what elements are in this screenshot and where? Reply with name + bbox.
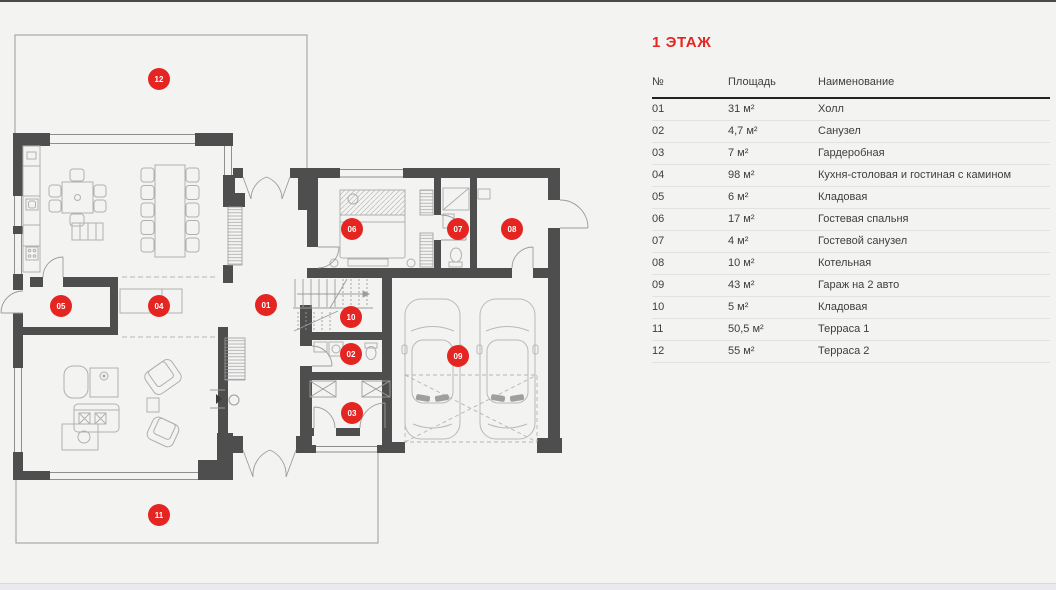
legend-rows: 0131 м²Холл024,7 м²Санузел037 м²Гардероб… xyxy=(652,99,1050,363)
terrace-1-outline xyxy=(16,453,378,543)
windows xyxy=(15,135,404,480)
row-num: 04 xyxy=(652,165,728,186)
car-2 xyxy=(477,299,538,439)
room-marker-04[interactable]: 04 xyxy=(148,295,170,317)
row-name: Гараж на 2 авто xyxy=(818,275,1050,296)
lounge-chair xyxy=(64,366,88,398)
row-area: 7 м² xyxy=(728,143,818,164)
hall-wardrobe-upper xyxy=(228,207,242,265)
dining-table xyxy=(141,165,199,257)
row-area: 4 м² xyxy=(728,231,818,252)
desk-chair xyxy=(78,431,90,443)
row-area: 98 м² xyxy=(728,165,818,186)
room-marker-03[interactable]: 03 xyxy=(341,402,363,424)
svg-text:10: 10 xyxy=(347,313,356,322)
row-num: 11 xyxy=(652,319,728,340)
row-num: 12 xyxy=(652,341,728,362)
armchair-2 xyxy=(145,415,181,449)
svg-text:12: 12 xyxy=(155,75,164,84)
boiler-unit xyxy=(478,189,490,199)
storage-exterior-door xyxy=(1,291,23,313)
legend-row-01: 0131 м²Холл xyxy=(652,99,1050,121)
row-area: 5 м² xyxy=(728,297,818,318)
row-name: Гостевой санузел xyxy=(818,231,1050,252)
bottom-strip xyxy=(0,583,1056,590)
row-name: Кухня-столовая и гостиная с камином xyxy=(818,165,1050,186)
svg-text:04: 04 xyxy=(155,302,164,311)
row-area: 50,5 м² xyxy=(728,319,818,340)
boiler-inner-door xyxy=(512,247,533,268)
row-name: Гардеробная xyxy=(818,143,1050,164)
sofa xyxy=(74,404,119,432)
row-area: 31 м² xyxy=(728,99,818,120)
room-marker-09[interactable]: 09 xyxy=(447,345,469,367)
legend-row-05: 056 м²Кладовая xyxy=(652,187,1050,209)
row-num: 05 xyxy=(652,187,728,208)
svg-text:08: 08 xyxy=(508,225,517,234)
row-num: 01 xyxy=(652,99,728,120)
row-name: Санузел xyxy=(818,121,1050,142)
svg-text:07: 07 xyxy=(454,225,463,234)
kitchen-table xyxy=(49,169,106,226)
svg-text:11: 11 xyxy=(155,511,164,520)
room-marker-02[interactable]: 02 xyxy=(340,343,362,365)
legend-row-09: 0943 м²Гараж на 2 авто xyxy=(652,275,1050,297)
desk xyxy=(62,424,98,450)
nightstand-2 xyxy=(407,259,415,267)
legend-row-08: 0810 м²Котельная xyxy=(652,253,1050,275)
row-num: 03 xyxy=(652,143,728,164)
col-area: Площадь xyxy=(728,76,818,88)
kitchen-appliance-icon xyxy=(27,152,36,159)
row-name: Кладовая xyxy=(818,187,1050,208)
legend-row-11: 1150,5 м²Терраса 1 xyxy=(652,319,1050,341)
row-num: 08 xyxy=(652,253,728,274)
row-num: 07 xyxy=(652,231,728,252)
terrace-2-outline xyxy=(15,35,307,168)
boiler-exterior-door xyxy=(560,200,588,228)
garage xyxy=(402,299,538,442)
svg-text:03: 03 xyxy=(348,409,357,418)
bed-bench xyxy=(348,259,388,266)
row-name: Терраса 2 xyxy=(818,341,1050,362)
row-num: 02 xyxy=(652,121,728,142)
legend-row-02: 024,7 м²Санузел xyxy=(652,121,1050,143)
legend-row-10: 105 м²Кладовая xyxy=(652,297,1050,319)
bedroom-wardrobe-2 xyxy=(420,233,433,267)
legend-row-06: 0617 м²Гостевая спальня xyxy=(652,209,1050,231)
bedroom-wardrobe-1 xyxy=(420,190,433,215)
legend-row-03: 037 м²Гардеробная xyxy=(652,143,1050,165)
row-area: 17 м² xyxy=(728,209,818,230)
room-marker-06[interactable]: 06 xyxy=(341,218,363,240)
svg-text:06: 06 xyxy=(348,225,357,234)
svg-text:02: 02 xyxy=(347,350,356,359)
room-markers: 010203040506070809101112 xyxy=(50,68,523,526)
living-room-furniture xyxy=(62,357,184,450)
row-name: Терраса 1 xyxy=(818,319,1050,340)
legend-row-07: 074 м²Гостевой санузел xyxy=(652,231,1050,253)
row-name: Котельная xyxy=(818,253,1050,274)
wardrobe-door-right xyxy=(360,403,385,428)
legend-panel: 1 ЭТАЖ № Площадь Наименование 0131 м²Хол… xyxy=(652,28,1050,363)
table-plant-icon xyxy=(75,195,81,201)
row-area: 6 м² xyxy=(728,187,818,208)
room-marker-07[interactable]: 07 xyxy=(447,218,469,240)
row-area: 4,7 м² xyxy=(728,121,818,142)
side-table xyxy=(147,398,159,412)
kitchen-counter xyxy=(23,146,103,272)
floor-plan: 010203040506070809101112 xyxy=(0,0,640,590)
garage-door-zone xyxy=(405,375,537,442)
page-title: 1 ЭТАЖ xyxy=(652,34,1050,51)
col-number: № xyxy=(652,76,728,88)
hall-wardrobe-lower xyxy=(225,338,245,380)
room-marker-10[interactable]: 10 xyxy=(340,306,362,328)
toilet-icon xyxy=(451,248,462,262)
legend-row-12: 1255 м²Терраса 2 xyxy=(652,341,1050,363)
row-area: 10 м² xyxy=(728,253,818,274)
row-name: Кладовая xyxy=(818,297,1050,318)
row-num: 09 xyxy=(652,275,728,296)
row-area: 43 м² xyxy=(728,275,818,296)
row-num: 06 xyxy=(652,209,728,230)
row-name: Холл xyxy=(818,99,1050,120)
wardrobe-door-left xyxy=(314,407,335,428)
wardrobe-boxes xyxy=(310,381,390,397)
legend-row-04: 0498 м²Кухня-столовая и гостиная с камин… xyxy=(652,165,1050,187)
room-marker-12[interactable]: 12 xyxy=(148,68,170,90)
flue-icon xyxy=(229,395,239,405)
car-1 xyxy=(402,299,463,439)
entry-door-terrace1 xyxy=(243,450,270,477)
bedroom-door xyxy=(318,247,339,268)
col-name: Наименование xyxy=(818,76,1050,88)
room-marker-05[interactable]: 05 xyxy=(50,295,72,317)
row-num: 10 xyxy=(652,297,728,318)
entry-door-terrace2 xyxy=(243,177,267,199)
legend-header: № Площадь Наименование xyxy=(652,76,1050,99)
armchair-1 xyxy=(142,357,183,397)
room-marker-01[interactable]: 01 xyxy=(255,294,277,316)
terrace-outlines xyxy=(15,35,378,543)
svg-text:09: 09 xyxy=(454,352,463,361)
row-area: 55 м² xyxy=(728,341,818,362)
svg-text:01: 01 xyxy=(262,301,271,310)
storage-kitchen-door xyxy=(43,257,63,277)
row-name: Гостевая спальня xyxy=(818,209,1050,230)
svg-text:05: 05 xyxy=(57,302,66,311)
room-marker-11[interactable]: 11 xyxy=(148,504,170,526)
stove-icon xyxy=(26,247,38,260)
room-marker-08[interactable]: 08 xyxy=(501,218,523,240)
